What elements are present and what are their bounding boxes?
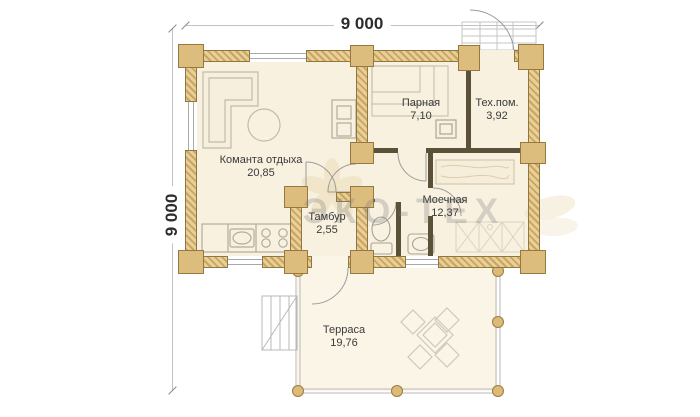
room-area: 3,92 [486, 110, 507, 122]
partition-washroom [428, 153, 433, 188]
room-label-tambur: Тамбур 2,55 [308, 211, 345, 237]
log-post [520, 250, 546, 274]
kitchen-counter [202, 224, 296, 252]
stove-burner [279, 239, 287, 247]
room-label-terrace: Терраса 19,76 [323, 324, 365, 350]
door-steamroom [398, 153, 426, 181]
room-area: 20,85 [247, 167, 275, 179]
dimension-label-height: 9 000 [162, 187, 182, 244]
floor-plan: 9 000 9 000 [0, 0, 700, 417]
log-post [520, 142, 546, 164]
log-post [518, 44, 544, 70]
partition-steam-tech [466, 62, 471, 148]
room-name: Парная [402, 97, 440, 109]
room-label-steam-room: Парная 7,10 [402, 97, 440, 123]
room-name: Команта отдыха [220, 154, 303, 166]
log-post [178, 44, 204, 68]
room-name: Тех.пом. [475, 97, 518, 109]
dimension-label-width: 9 000 [334, 14, 391, 34]
washroom-bench [436, 160, 514, 184]
log-post [458, 45, 480, 71]
room-name: Моечная [422, 194, 467, 206]
room-label-washroom: Моечная 12,37 [422, 194, 467, 220]
round-table [248, 109, 280, 141]
terrace-stairs [262, 296, 297, 350]
partition-hall [426, 148, 528, 153]
stove-burner [279, 229, 287, 237]
door-terrace [312, 268, 348, 304]
corner-sofa [203, 72, 258, 148]
log-post [350, 142, 374, 164]
room-label-tech-room: Тех.пом. 3,92 [475, 97, 518, 123]
room-area: 7,10 [410, 110, 431, 122]
stove-burner [262, 239, 270, 247]
room-area: 19,76 [330, 337, 358, 349]
doorway-terrace [312, 256, 348, 268]
log-post [350, 250, 374, 274]
room-name: Терраса [323, 324, 365, 336]
window-left [185, 102, 197, 150]
window-bottom [228, 256, 262, 268]
log-post [350, 45, 374, 67]
room-name: Тамбур [308, 211, 345, 223]
terrace-chair [408, 345, 432, 369]
room-area: 12,37 [431, 207, 459, 219]
log-wall-tambur [290, 202, 302, 256]
terrace-table-set [401, 308, 459, 369]
fireplace [332, 100, 356, 138]
room-label-rest-room: Команта отдыха 20,85 [220, 154, 303, 180]
log-post [284, 250, 308, 274]
window-top [250, 50, 306, 62]
room-area: 2,55 [316, 224, 337, 236]
window-bottom [406, 256, 438, 268]
log-wall-top [306, 50, 470, 62]
log-post [178, 250, 204, 274]
stove-burner [262, 229, 270, 237]
terrace-chair [435, 343, 459, 367]
